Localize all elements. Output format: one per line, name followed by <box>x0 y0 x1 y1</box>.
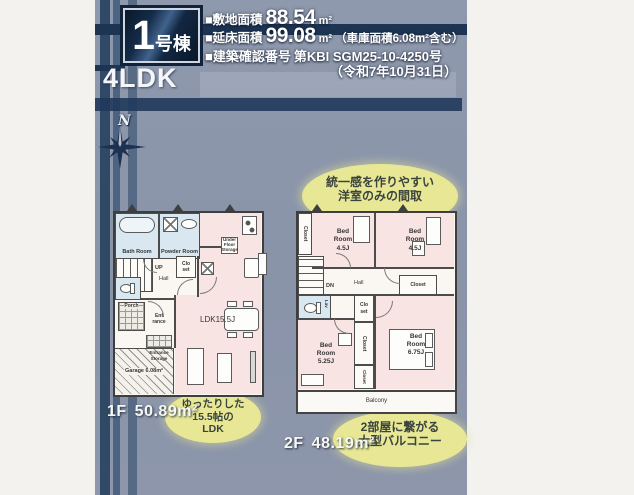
up-label: UP <box>155 265 163 272</box>
bathtub-icon <box>119 217 155 233</box>
closet-ne-label: Closet <box>410 282 425 288</box>
stairs-2f <box>298 256 324 296</box>
plan-type: 4LDK <box>103 63 178 94</box>
bed-icon <box>426 217 441 245</box>
room-powder: Powder Room <box>159 213 200 259</box>
compass-star-icon <box>96 122 148 172</box>
ldk-label: LDK15.5J <box>200 315 235 325</box>
sofa-icon <box>187 348 204 385</box>
total-area-value: 99.08 <box>266 24 316 48</box>
balcony: Balcony <box>296 390 457 414</box>
room-toilet-1f <box>115 277 141 300</box>
door-arc <box>177 279 193 295</box>
dn-label: DN <box>326 283 334 290</box>
lower-dark-band <box>95 98 462 111</box>
closet-mid-label: Clo set <box>358 302 370 315</box>
wall <box>312 267 454 269</box>
wall <box>141 298 175 300</box>
closet-c2-label: Closet <box>361 370 367 384</box>
sink-icon <box>181 219 197 229</box>
callout-1f-line2: 15.5帖の <box>192 411 233 424</box>
roof-vent-icon <box>398 204 408 211</box>
closet-1f-label: Clo set <box>180 261 192 274</box>
desk-icon <box>301 374 324 386</box>
entrance-storage-label: Entrance Storage <box>145 350 173 361</box>
room-closet-c1: Closet <box>354 322 374 365</box>
kitchen-sink-icon <box>201 262 214 275</box>
tv-board-icon <box>250 351 256 383</box>
wall <box>374 213 376 268</box>
room-closet-1f: Clo set <box>176 256 196 278</box>
balcony-label: Balcony <box>366 398 387 406</box>
chair <box>227 301 237 307</box>
permit-date-row: （令和7年10月31日） <box>330 61 457 80</box>
total-area-label: ■延床面積 <box>205 27 263 46</box>
roof-vent-icon <box>127 204 137 211</box>
chair <box>243 332 253 338</box>
room-bath: Bath Room <box>115 213 159 259</box>
porch-label: Porch <box>124 303 138 309</box>
roof-vent-icon <box>225 204 235 211</box>
room-porch: Porch <box>118 302 145 331</box>
room-bed2: Bed Room 4.5J <box>376 213 454 268</box>
flyer-page: 1 号棟 4LDK ■敷地面積 88.54 m² ■延床面積 99.08 m² … <box>0 0 634 495</box>
stove-icon <box>242 216 257 235</box>
roof-vent-icon <box>312 204 322 211</box>
under-floor-storage-label: Under Floor Storage <box>221 238 238 253</box>
floorplan-1f: Bath Room Powder Room UP Hall Clo set Po… <box>113 211 264 397</box>
door-arc <box>384 268 400 284</box>
under-floor-storage-box: Under Floor Storage <box>221 237 238 254</box>
desk-icon <box>338 333 352 346</box>
bed1-label: Bed Room 4.5J <box>330 228 356 252</box>
floor2-area: 48.19m² <box>312 435 375 453</box>
chair <box>227 332 237 338</box>
bed2-label: Bed Room 4.5J <box>402 228 428 252</box>
room-closet-mid: Clo set <box>354 295 374 322</box>
garage-label: Garage 6.08m² <box>124 368 164 375</box>
hall-label-1f: Hall <box>159 276 168 283</box>
room-closet-nw: Closet <box>298 213 312 255</box>
total-area-row: ■延床面積 99.08 m² （車庫面積6.08m²含む） <box>205 24 464 48</box>
closet-nw-label: Closet <box>302 226 308 241</box>
floorplan-2f: Bed Room 4.5J Bed Room 4.5J Bed Room 5.2… <box>296 211 457 392</box>
wall <box>298 294 454 296</box>
permit-date: （令和7年10月31日） <box>330 61 457 80</box>
chair <box>243 301 253 307</box>
callout-2f-top-line2: 洋室のみの間取 <box>338 189 422 203</box>
refrigerator-icon <box>244 258 259 278</box>
building-number: 1 <box>132 15 155 56</box>
building-title-box: 1 号棟 <box>123 8 200 63</box>
floor2-label: 2F <box>284 435 304 453</box>
bed4-label: Bed Room 6.75J <box>402 333 430 357</box>
floor1-label: 1F <box>107 403 127 421</box>
entrance-storage-box <box>146 335 172 348</box>
entrance-label: Ent rance <box>148 313 170 326</box>
washing-machine-icon <box>163 217 178 232</box>
wall <box>174 295 176 348</box>
permit-label: ■建築確認番号 <box>205 46 291 65</box>
bed3-label: Bed Room 5.25J <box>313 342 339 366</box>
floor1-area-row: 1F 50.89m² <box>107 403 198 421</box>
hall-label-2f: Hall <box>354 280 363 287</box>
lav-label: Lav <box>323 300 329 308</box>
callout-1f-line3: LDK <box>202 423 224 436</box>
roof-vent-icon <box>173 204 183 211</box>
closet-c1-label: Closet <box>361 336 367 351</box>
bath-label: Bath Room <box>122 249 151 256</box>
room-closet-ne: Closet <box>399 275 437 295</box>
wall <box>197 256 199 297</box>
floor2-area-row: 2F 48.19m² <box>284 435 375 453</box>
total-area-unit: m² <box>319 33 332 45</box>
toilet-tank-icon <box>130 283 135 294</box>
powder-label: Powder Room <box>161 249 198 256</box>
floor1-area: 50.89m² <box>135 403 198 421</box>
room-lav: Lav <box>298 295 331 320</box>
total-area-note: （車庫面積6.08m²含む） <box>335 30 463 46</box>
callout-2f-bottom-line1: 2部屋に繋がる <box>361 420 440 434</box>
toilet-tank-icon <box>316 302 321 314</box>
room-closet-c2: Closet <box>354 365 374 389</box>
low-table-icon <box>217 353 232 383</box>
bay-window <box>258 253 267 275</box>
building-suffix: 号棟 <box>155 30 191 56</box>
callout-2f-top-line1: 統一感を作りやすい <box>326 175 434 189</box>
